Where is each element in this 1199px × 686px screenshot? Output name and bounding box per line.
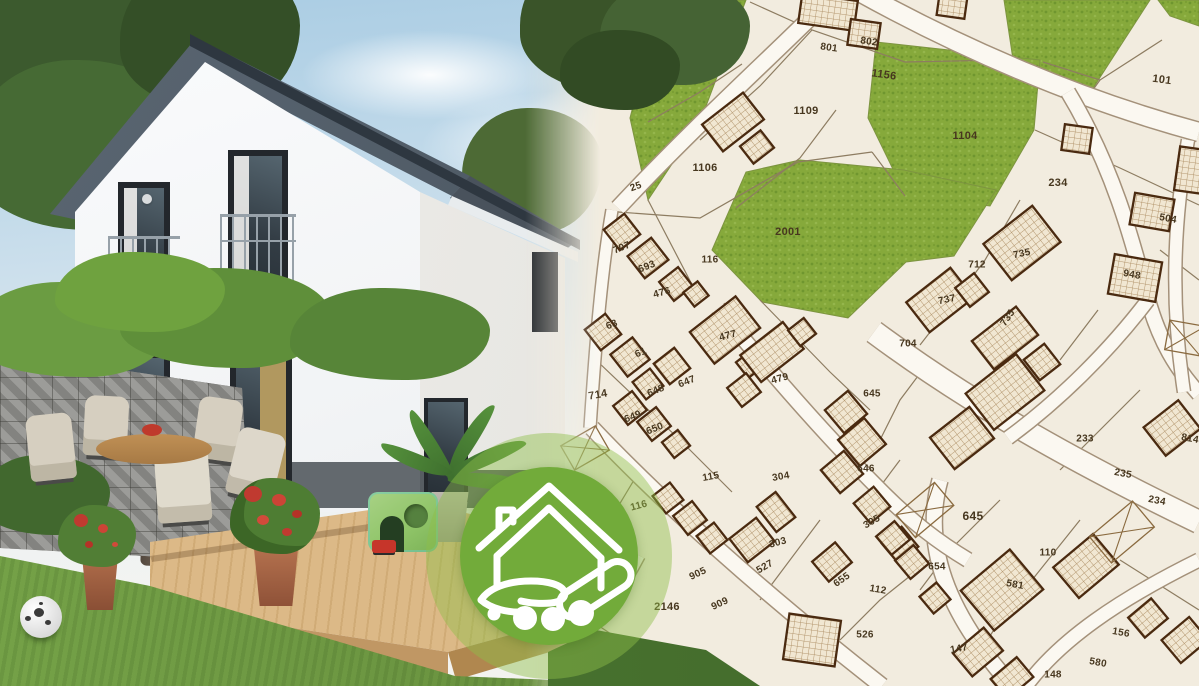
patio-chair	[25, 412, 78, 482]
hedge	[290, 288, 490, 380]
hero-composite: 8018021156110911062510111042342001707693…	[0, 0, 1199, 686]
geranium-flowers	[230, 478, 320, 554]
tree-branch-foliage	[560, 30, 680, 110]
flower-pot	[252, 548, 300, 606]
potted-plant	[58, 505, 136, 567]
soccer-ball	[20, 596, 62, 638]
red-flowers	[244, 486, 262, 502]
wall-lamp	[142, 194, 152, 204]
toy-car	[372, 540, 396, 553]
ball-patch	[34, 608, 44, 617]
table-bowl	[142, 424, 162, 436]
house-in-hand-icon	[460, 467, 638, 645]
patio-table	[96, 434, 212, 464]
red-flowers	[74, 514, 88, 527]
hedge	[55, 252, 225, 332]
playhouse-hole	[404, 504, 428, 528]
